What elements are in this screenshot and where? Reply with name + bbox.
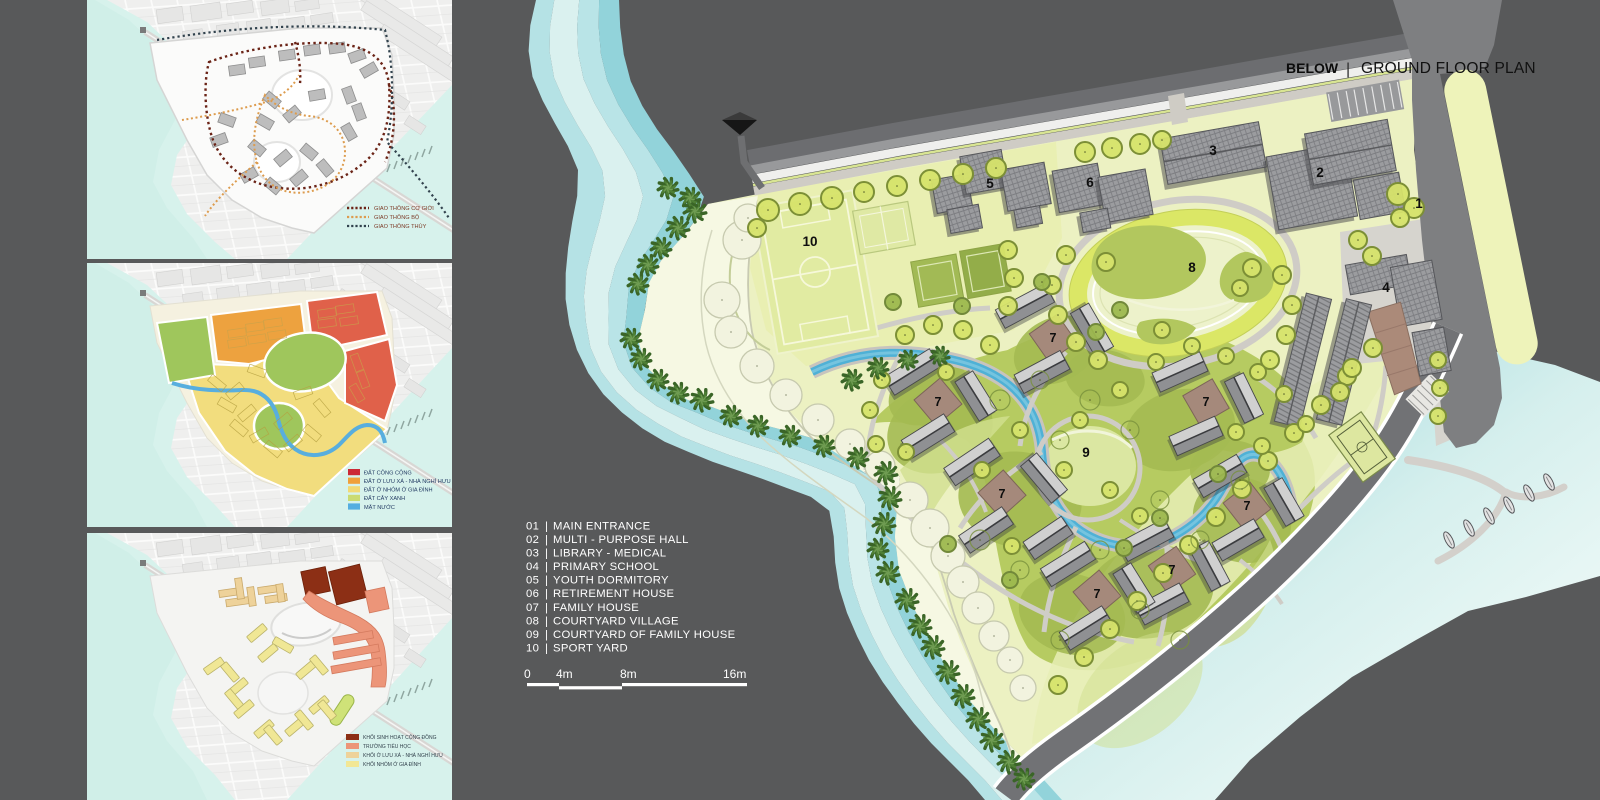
svg-text:08: 08: [526, 615, 539, 627]
svg-text:4: 4: [1382, 280, 1390, 295]
svg-text:16m: 16m: [723, 667, 746, 681]
svg-text:PRIMARY SCHOOL: PRIMARY SCHOOL: [553, 561, 659, 573]
svg-text:09: 09: [526, 629, 539, 641]
svg-text:GIAO THÔNG CƠ GIỚI: GIAO THÔNG CƠ GIỚI: [374, 205, 434, 212]
svg-text:3: 3: [1209, 143, 1217, 158]
svg-text:KHỐI NHÓM Ở GIA ĐÌNH: KHỐI NHÓM Ở GIA ĐÌNH: [363, 761, 421, 768]
svg-text:|: |: [1346, 61, 1350, 78]
svg-text:ĐẤT CÔNG CỘNG: ĐẤT CÔNG CỘNG: [364, 469, 412, 476]
svg-text:7: 7: [1169, 563, 1176, 577]
svg-text:GROUND FLOOR PLAN: GROUND FLOOR PLAN: [1361, 60, 1536, 77]
svg-text:|: |: [545, 629, 548, 641]
svg-text:|: |: [545, 575, 548, 587]
svg-text:01: 01: [526, 521, 539, 533]
svg-text:10: 10: [526, 643, 539, 655]
svg-text:|: |: [545, 643, 548, 655]
svg-text:COURTYARD VILLAGE: COURTYARD VILLAGE: [553, 615, 679, 627]
svg-text:7: 7: [1203, 395, 1210, 409]
svg-text:7: 7: [999, 487, 1006, 501]
svg-text:7: 7: [1094, 587, 1101, 601]
svg-text:ĐẤT Ở NHÓM Ở GIA ĐÌNH: ĐẤT Ở NHÓM Ở GIA ĐÌNH: [364, 487, 433, 494]
svg-text:ĐẤT Ở LƯU XÁ - NHÀ NGHỈ HƯU: ĐẤT Ở LƯU XÁ - NHÀ NGHỈ HƯU: [364, 478, 451, 485]
svg-text:|: |: [545, 521, 548, 533]
svg-text:7: 7: [935, 395, 942, 409]
svg-text:COURTYARD OF FAMILY HOUSE: COURTYARD OF FAMILY HOUSE: [553, 629, 736, 641]
svg-text:YOUTH DORMITORY: YOUTH DORMITORY: [553, 575, 669, 587]
svg-text:|: |: [545, 615, 548, 627]
svg-text:7: 7: [1244, 499, 1251, 513]
svg-text:FAMILY HOUSE: FAMILY HOUSE: [553, 602, 639, 614]
svg-text:6: 6: [1086, 175, 1094, 190]
svg-text:|: |: [545, 534, 548, 546]
svg-text:5: 5: [986, 176, 994, 191]
svg-text:8m: 8m: [620, 667, 637, 681]
svg-text:2: 2: [1316, 165, 1324, 180]
svg-text:MẶT NƯỚC: MẶT NƯỚC: [364, 504, 395, 511]
svg-text:7: 7: [1050, 331, 1057, 345]
svg-text:4m: 4m: [556, 667, 573, 681]
svg-text:10: 10: [802, 234, 817, 249]
svg-text:BELOW: BELOW: [1286, 60, 1339, 76]
svg-text:TRƯỜNG TIỂU HỌC: TRƯỜNG TIỂU HỌC: [363, 743, 411, 750]
svg-text:04: 04: [526, 561, 539, 573]
svg-text:ĐẤT CÂY XANH: ĐẤT CÂY XANH: [364, 495, 405, 502]
svg-text:KHỐI SINH HOẠT CỘNG ĐỒNG: KHỐI SINH HOẠT CỘNG ĐỒNG: [363, 734, 437, 741]
svg-text:LIBRARY - MEDICAL: LIBRARY - MEDICAL: [553, 548, 666, 560]
svg-text:|: |: [545, 588, 548, 600]
svg-text:SPORT YARD: SPORT YARD: [553, 643, 628, 655]
svg-text:07: 07: [526, 602, 539, 614]
svg-text:|: |: [545, 548, 548, 560]
svg-text:GIAO THÔNG BỘ: GIAO THÔNG BỘ: [374, 214, 420, 221]
svg-text:MAIN ENTRANCE: MAIN ENTRANCE: [553, 521, 651, 533]
svg-text:06: 06: [526, 588, 539, 600]
svg-text:1: 1: [1415, 196, 1423, 211]
svg-text:|: |: [545, 561, 548, 573]
svg-text:KHỐI Ở LƯU XÁ - NHÀ NGHỈ HƯU: KHỐI Ở LƯU XÁ - NHÀ NGHỈ HƯU: [363, 752, 443, 759]
svg-text:RETIREMENT HOUSE: RETIREMENT HOUSE: [553, 588, 675, 600]
svg-text:02: 02: [526, 534, 539, 546]
svg-text:GIAO THÔNG THỦY: GIAO THÔNG THỦY: [374, 223, 427, 230]
svg-text:0: 0: [524, 667, 531, 681]
svg-text:MULTI - PURPOSE HALL: MULTI - PURPOSE HALL: [553, 534, 689, 546]
svg-text:9: 9: [1082, 445, 1090, 460]
svg-text:05: 05: [526, 575, 539, 587]
svg-text:03: 03: [526, 548, 539, 560]
svg-text:8: 8: [1188, 260, 1196, 275]
svg-text:|: |: [545, 602, 548, 614]
